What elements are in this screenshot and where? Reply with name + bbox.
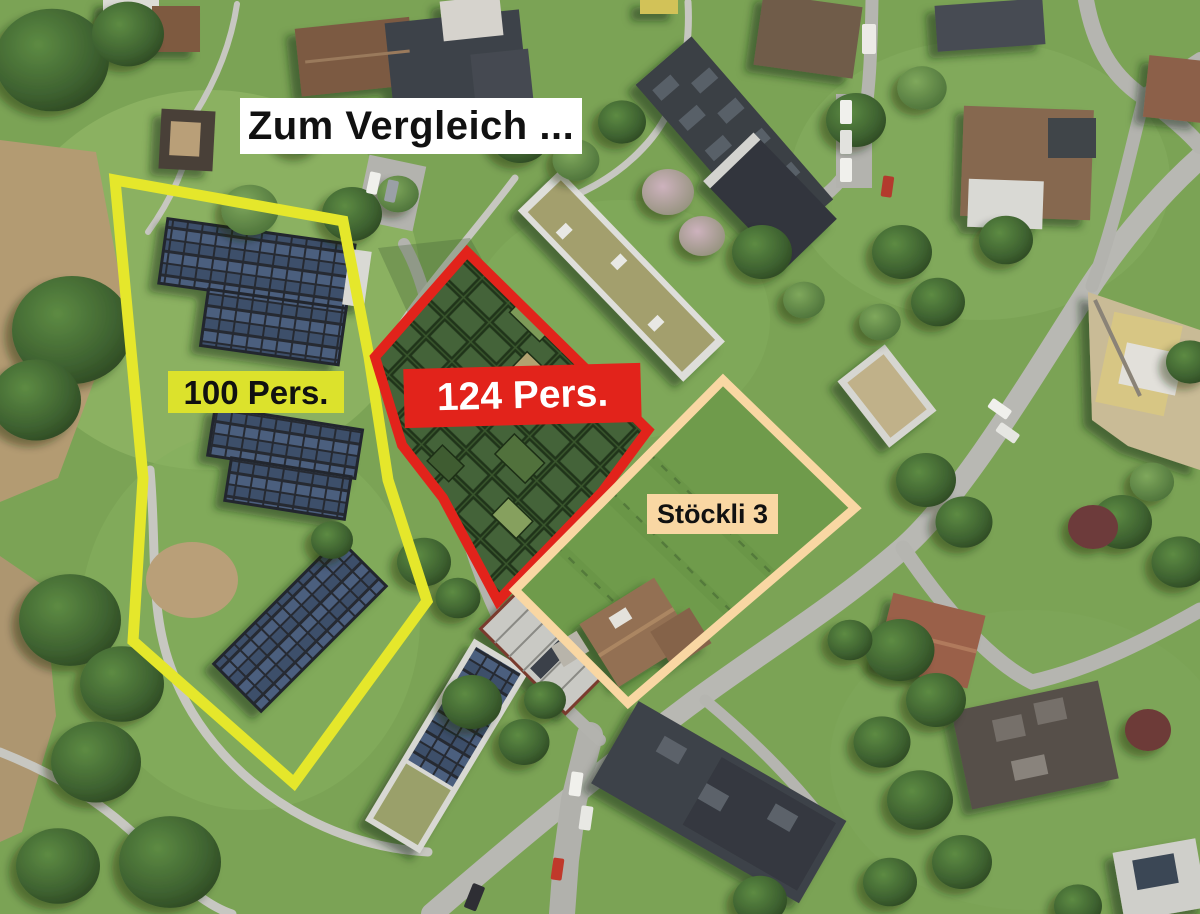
slide: Zum Vergleich ... 100 Pers. 124 Pers. St…	[0, 0, 1200, 914]
slide-title: Zum Vergleich ...	[240, 98, 582, 154]
site-label-100-pers: 100 Pers.	[168, 371, 344, 413]
aerial-photo	[0, 0, 1200, 914]
playground-sand	[146, 542, 238, 618]
site-label-stoeckli-3: Stöckli 3	[647, 494, 778, 534]
site-label-124-pers: 124 Pers.	[403, 363, 641, 428]
